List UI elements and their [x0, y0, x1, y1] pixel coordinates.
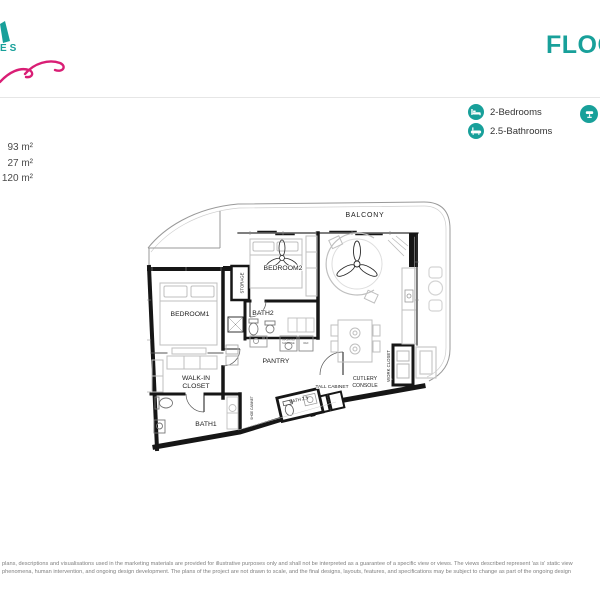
ref-label: REF [303, 341, 309, 345]
cutlery-console-label-line1: CUTLERY [353, 376, 378, 382]
disclaimer-line1: plans, descriptions and visualisations u… [2, 560, 600, 568]
bath-2-5-room: BATH 2.5 [277, 389, 323, 422]
disclaimer-line2: phenomena, human intervention, and ongoi… [2, 568, 600, 576]
floor-plan-page: { "colors": { "brand_teal": "#18a09a", "… [0, 0, 600, 600]
balcony-label: BALCONY [345, 212, 384, 219]
furniture-living [326, 233, 416, 362]
bedroom2-label: BEDROOM2 [264, 265, 303, 272]
shoe-cabinet-label: SHOE CABINET [250, 396, 254, 420]
storage-label: STORAGE [240, 272, 245, 293]
tall-cabinet-label: TALL CABINET [315, 384, 348, 390]
furniture-bath2 [249, 318, 314, 335]
walk-in-closet-label-line2: CLOSET [182, 383, 209, 390]
cutlery-console-label-line2: CONSOLE [352, 383, 378, 389]
disclaimer: plans, descriptions and visualisations u… [2, 560, 600, 576]
bath1-label: BATH1 [195, 421, 217, 428]
walk-in-closet-label-line1: WALK-IN [182, 375, 210, 382]
bedroom1-label: BEDROOM1 [171, 311, 210, 318]
washing-machine-label-line2: MACHINE [282, 341, 295, 345]
ceiling-fan-living-icon [335, 241, 378, 279]
floor-plan: BATH 2.5 [0, 0, 600, 600]
work-closet [393, 345, 413, 385]
pantry-label: PANTRY [263, 358, 290, 365]
bath2-label: BATH2 [252, 310, 274, 317]
work-closet-label: WORK CLOSET [386, 350, 391, 382]
